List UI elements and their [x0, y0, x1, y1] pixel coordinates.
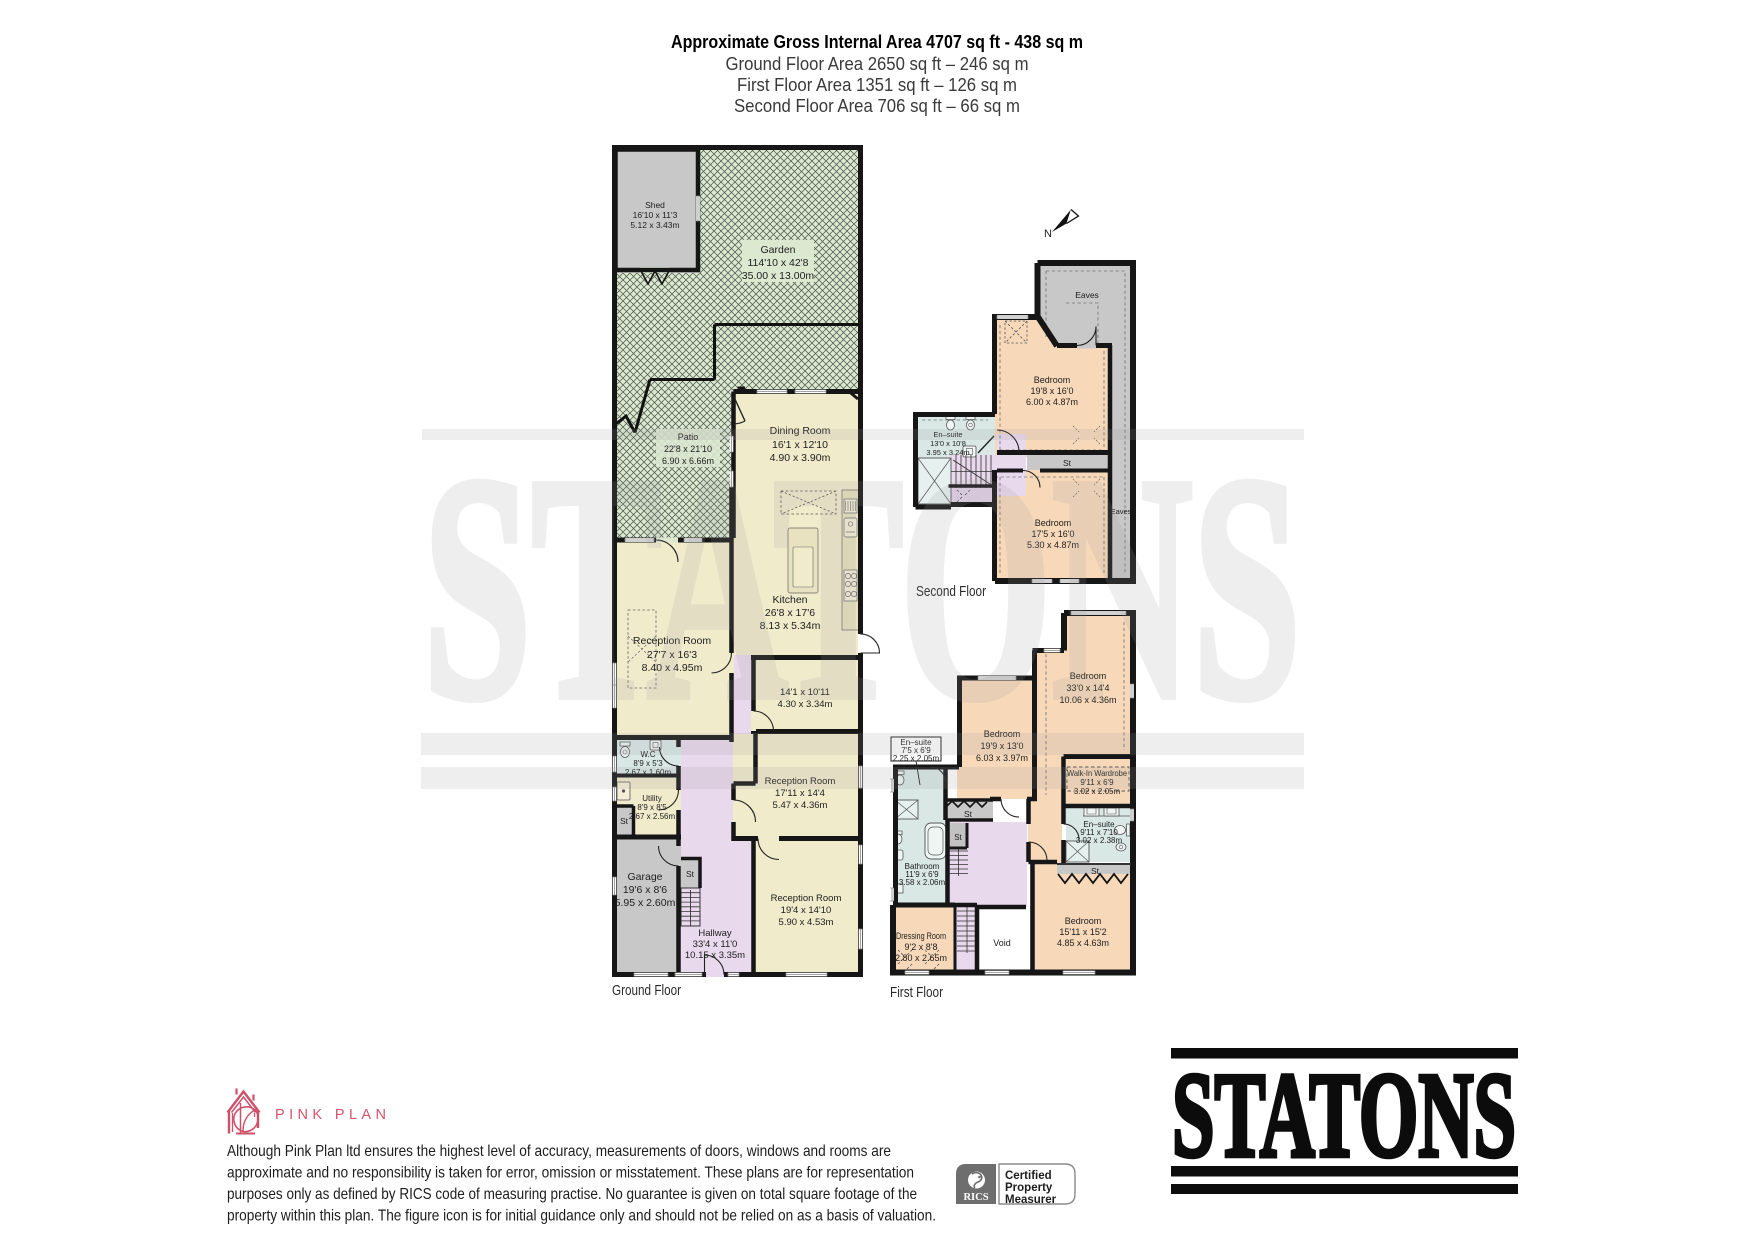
svg-text:Certified: Certified [1005, 1170, 1052, 1182]
svg-text:Second Floor Area 706 sq ft –: Second Floor Area 706 sq ft – 66 sq m [734, 95, 1020, 116]
svg-text:33'4 x 11'0: 33'4 x 11'0 [693, 939, 738, 950]
svg-text:19'8 x 16'0: 19'8 x 16'0 [1031, 386, 1074, 396]
svg-text:4.85 x 4.63m: 4.85 x 4.63m [1057, 938, 1109, 948]
svg-text:Hallway: Hallway [698, 928, 732, 939]
svg-text:5.12 x 3.43m: 5.12 x 3.43m [630, 220, 679, 230]
svg-text:Utility: Utility [642, 794, 662, 803]
svg-text:First Floor Area 1351 sq ft –: First Floor Area 1351 sq ft – 126 sq m [737, 74, 1017, 95]
svg-text:St: St [686, 869, 695, 879]
svg-text:Measurer: Measurer [1005, 1194, 1057, 1206]
svg-text:St: St [954, 833, 962, 842]
svg-text:STATONS: STATONS [1172, 1048, 1516, 1183]
svg-text:2.80 x 2.65m: 2.80 x 2.65m [895, 953, 947, 963]
svg-text:Although Pink Plan ltd ensures: Although Pink Plan ltd ensures the highe… [227, 1143, 891, 1160]
svg-text:19'6 x 8'6: 19'6 x 8'6 [623, 884, 667, 896]
svg-text:RICS: RICS [963, 1192, 988, 1203]
svg-text:Shed: Shed [645, 200, 665, 210]
svg-text:17'11 x 14'4: 17'11 x 14'4 [775, 788, 825, 799]
svg-text:9'2 x 8'8: 9'2 x 8'8 [905, 942, 938, 952]
svg-text:2.67 x 2.56m: 2.67 x 2.56m [629, 812, 676, 821]
svg-text:3.58 x 2.06m: 3.58 x 2.06m [899, 878, 946, 887]
svg-text:8'9 x 8'5: 8'9 x 8'5 [637, 803, 667, 812]
svg-text:Eaves: Eaves [1075, 290, 1099, 300]
svg-text:PINK PLAN: PINK PLAN [275, 1107, 390, 1123]
svg-text:STATONS: STATONS [423, 409, 1301, 766]
svg-text:approximate and no responsibil: approximate and no responsibility is tak… [227, 1165, 914, 1182]
svg-text:5.47 x 4.36m: 5.47 x 4.36m [773, 800, 828, 811]
svg-text:35.00 x 13.00m: 35.00 x 13.00m [742, 270, 815, 282]
svg-text:Bedroom: Bedroom [1065, 916, 1102, 926]
svg-text:Garage: Garage [627, 871, 662, 883]
svg-text:3.02 x 2.38m: 3.02 x 2.38m [1076, 836, 1123, 845]
svg-text:Reception Room: Reception Room [771, 893, 842, 904]
svg-text:St: St [620, 816, 629, 826]
svg-text:Bedroom: Bedroom [1034, 375, 1071, 385]
svg-text:Garden: Garden [760, 244, 795, 256]
svg-text:purposes only as defined by RI: purposes only as defined by RICS code of… [227, 1186, 917, 1203]
svg-text:Ground Floor Area 2650 sq ft –: Ground Floor Area 2650 sq ft – 246 sq m [726, 53, 1029, 74]
svg-text:Property: Property [1005, 1182, 1053, 1194]
svg-text:5.95 x 2.60m: 5.95 x 2.60m [615, 897, 676, 909]
svg-text:15'11 x 15'2: 15'11 x 15'2 [1059, 927, 1106, 937]
svg-text:19'4 x 14'10: 19'4 x 14'10 [781, 905, 832, 916]
svg-text:First Floor: First Floor [890, 984, 943, 1001]
svg-text:114'10 x 42'8: 114'10 x 42'8 [747, 257, 808, 269]
svg-text:N: N [1044, 228, 1052, 240]
svg-text:16'10 x 11'3: 16'10 x 11'3 [633, 210, 678, 220]
svg-text:Ground Floor: Ground Floor [612, 982, 681, 999]
svg-text:6.00 x 4.87m: 6.00 x 4.87m [1026, 397, 1078, 407]
svg-text:5.90 x 4.53m: 5.90 x 4.53m [779, 917, 834, 928]
svg-text:10.15 x 3.35m: 10.15 x 3.35m [685, 950, 745, 961]
svg-text:Void: Void [993, 938, 1011, 948]
svg-text:St: St [1091, 866, 1100, 876]
svg-text:Dressing Room: Dressing Room [896, 931, 946, 941]
svg-text:Approximate Gross Internal Are: Approximate Gross Internal Area 4707 sq … [671, 31, 1083, 52]
svg-text:St: St [964, 809, 973, 819]
svg-text:property within this plan. The: property within this plan. The figure ic… [227, 1208, 936, 1225]
